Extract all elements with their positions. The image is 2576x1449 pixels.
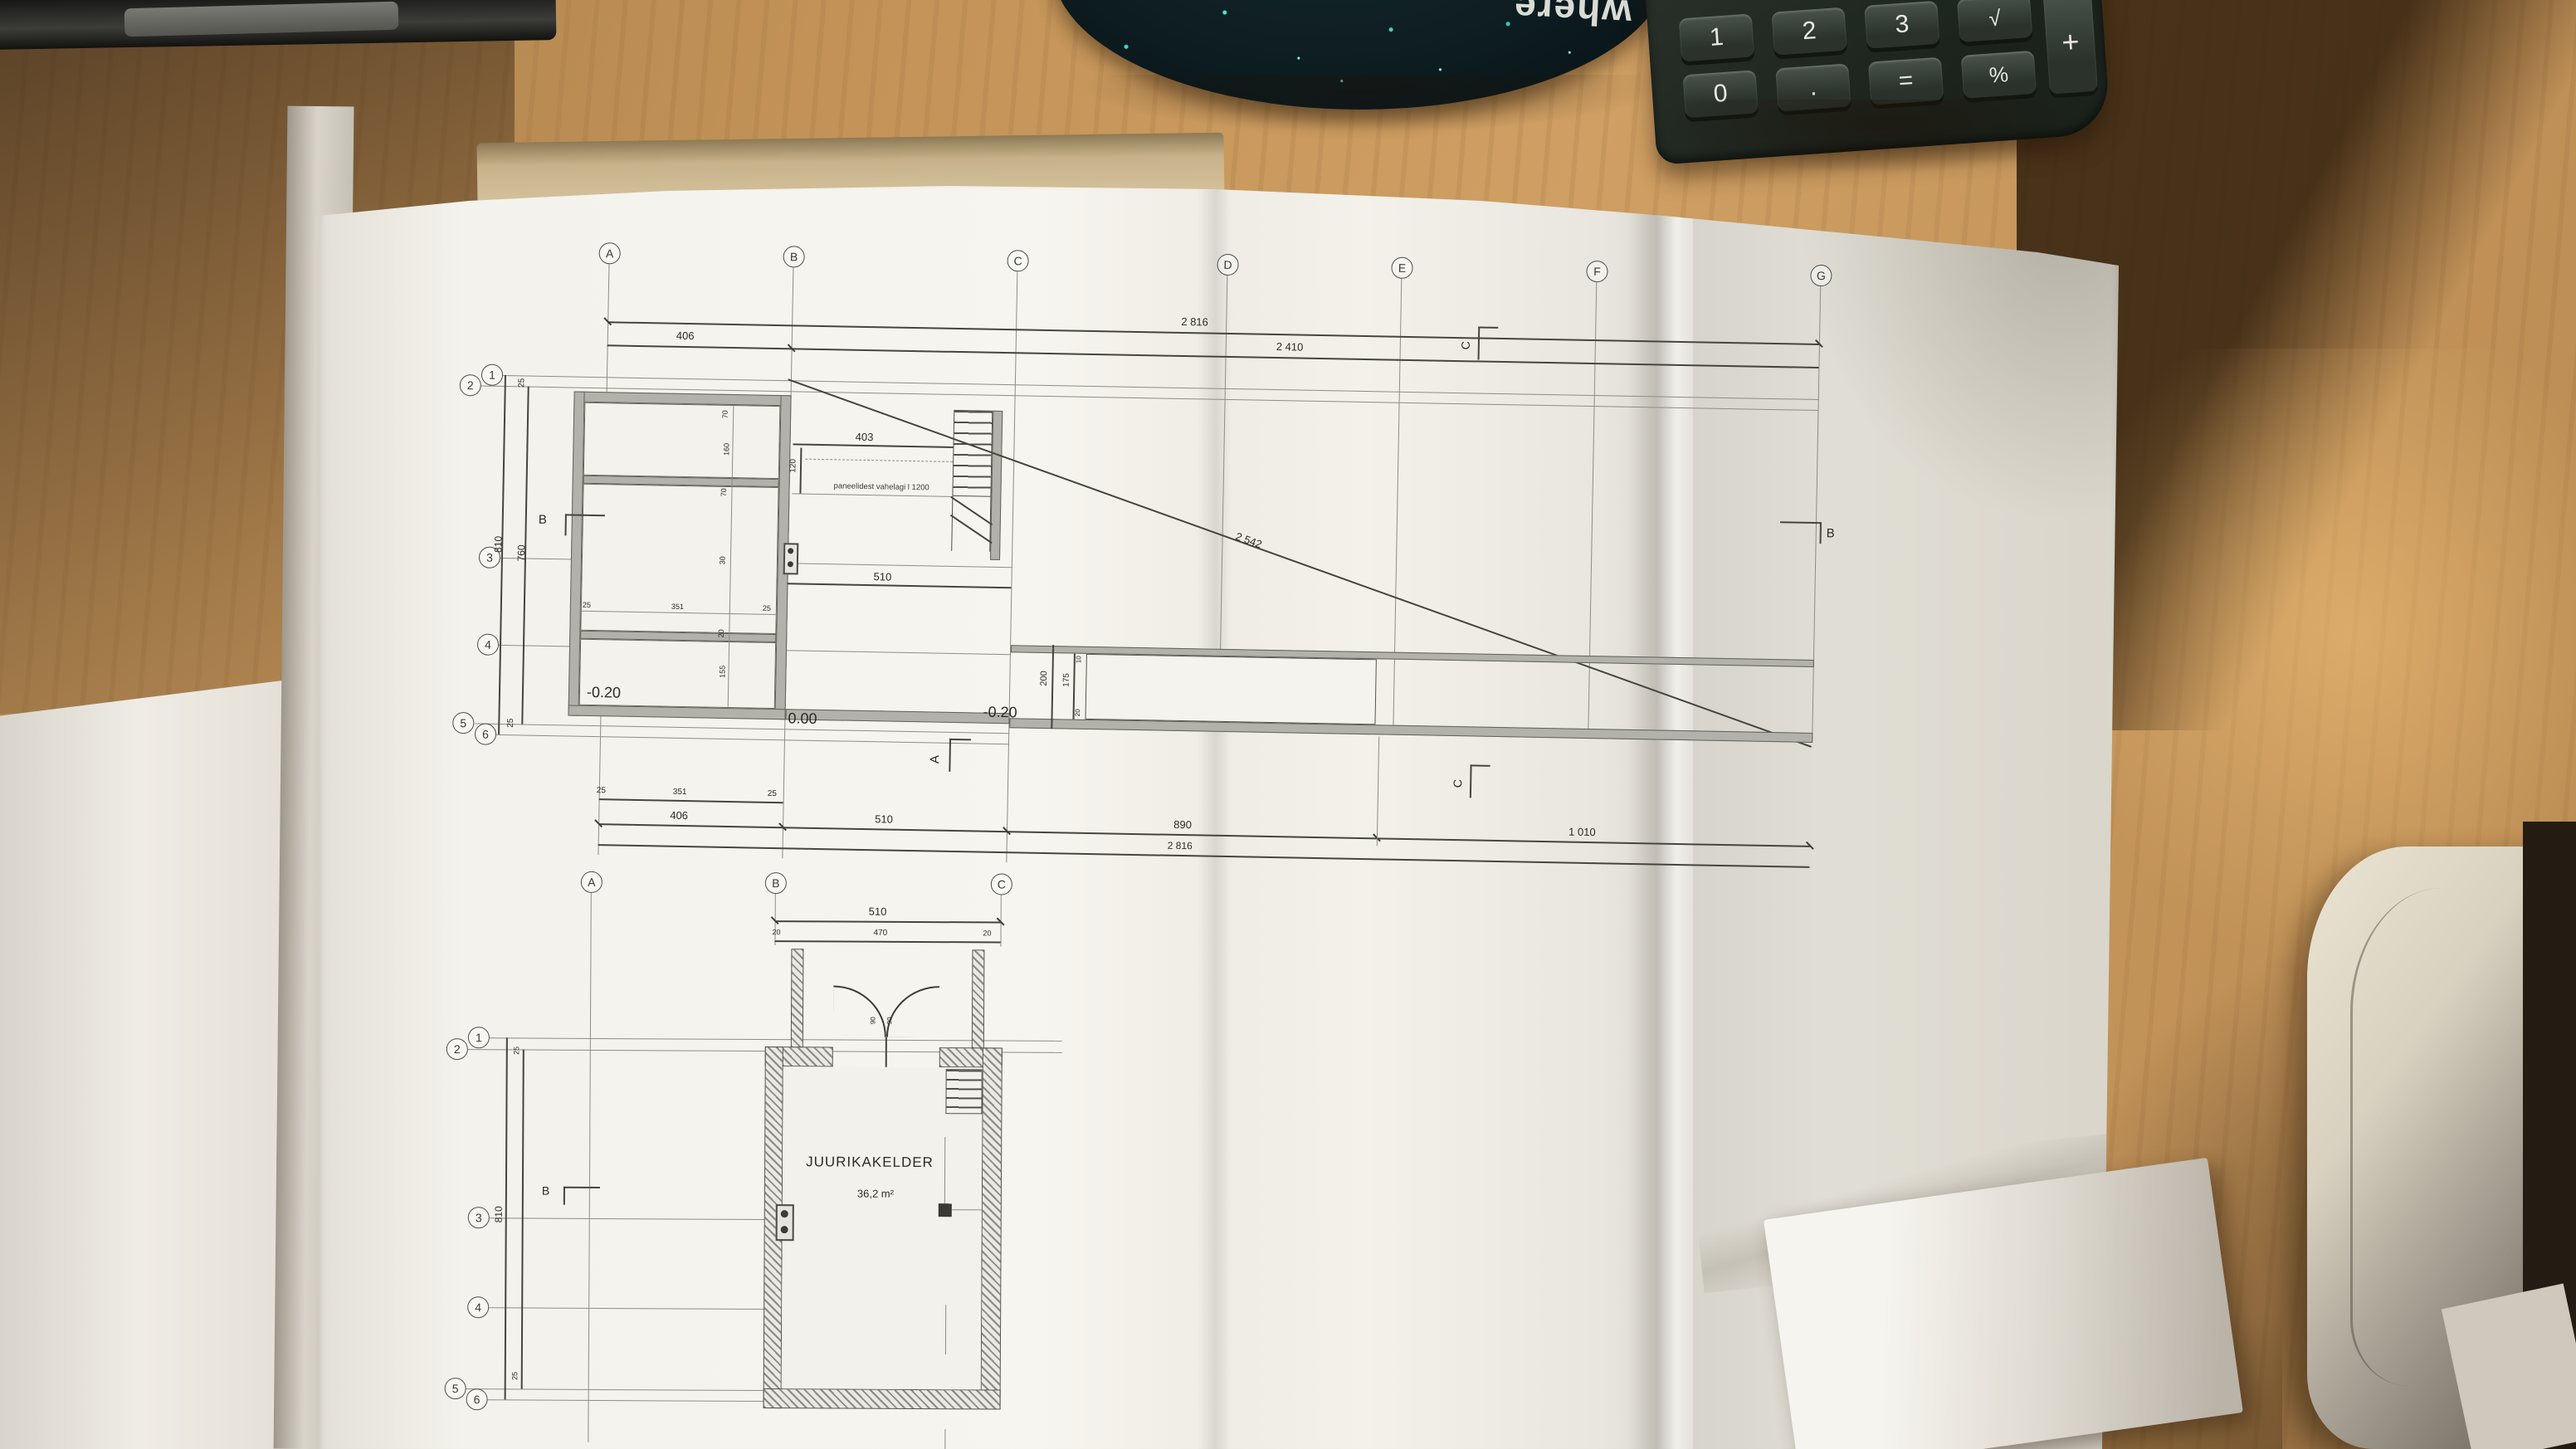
block-dim-70a: 70	[722, 410, 729, 418]
vestibule-wall-left	[791, 949, 804, 1048]
ramp-dim-line-outer	[1051, 645, 1053, 729]
axis-bubble-D: D	[1217, 254, 1238, 276]
dim-line-120	[799, 448, 802, 494]
axis-label-B: B	[790, 250, 798, 263]
section-marker-c-bottom: C	[1451, 779, 1463, 788]
calc-key-3-label: 3	[1894, 10, 1910, 39]
block-dim-30: 30	[719, 556, 726, 564]
dim-line-403	[793, 443, 954, 447]
stairs-upper-wall	[990, 411, 1003, 560]
section-marker-c-top-bracket	[1478, 326, 1498, 328]
left-page	[0, 677, 309, 1449]
axis-label-4: 4	[485, 638, 491, 651]
panel-bottom-line	[792, 493, 952, 497]
axis-label-4: 4	[475, 1300, 481, 1314]
section-marker-b-right-bracket	[1780, 521, 1820, 524]
door-dim-90b: 90	[886, 1017, 893, 1024]
dim-bottom-total: 2 816	[1168, 841, 1193, 851]
axis-label-5: 5	[460, 716, 466, 729]
calc-key-2: 2	[1771, 7, 1847, 56]
calc-key-2-label: 2	[1802, 17, 1817, 46]
block-dim-70b: 70	[720, 488, 728, 496]
ramp-dim-175: 175	[1063, 673, 1071, 687]
dim-bottom-890: 890	[1173, 819, 1192, 830]
dim-top-sub: 2 410	[1276, 341, 1304, 353]
dim-top-total: 2 816	[1181, 316, 1208, 328]
door-symbol-dot	[788, 561, 793, 567]
section-marker-b-left: B	[539, 514, 547, 526]
door-leaf-left-arc	[833, 985, 886, 1037]
axis-bubble-C: C	[1007, 250, 1028, 271]
dim-left-bottom-25: 25	[507, 719, 515, 728]
section-marker-a: A	[929, 755, 941, 764]
dim-ab: 406	[676, 330, 695, 341]
block-dim-155: 155	[719, 666, 726, 678]
calc-key-dot-label: .	[1809, 73, 1818, 101]
section-marker-b: B	[542, 1185, 549, 1197]
cellar-centerline-stub	[944, 1429, 945, 1449]
axis-label-6: 6	[482, 728, 489, 741]
calc-key-percent: %	[1961, 51, 2037, 99]
ramp-interior	[1086, 654, 1377, 724]
calc-key-sqrt: √	[1957, 0, 2032, 42]
dim-bottom-25r: 25	[768, 790, 777, 798]
dim-403: 403	[856, 432, 874, 442]
section-marker-c-bottom-bracket	[1471, 764, 1490, 766]
axis-label-G: G	[1817, 269, 1826, 282]
calc-key-3: 3	[1864, 1, 1939, 49]
cellar-interior	[782, 1066, 983, 1389]
dim-bottom-1010: 1 010	[1569, 827, 1596, 838]
panel-outline	[805, 459, 953, 462]
dim-line-bottom-sub	[599, 798, 783, 803]
gridline-col-g	[1812, 286, 1821, 743]
axis-bubble-4: 4	[477, 633, 499, 655]
section-marker-b-right-bracket	[1820, 522, 1822, 544]
axis-bubble-A: A	[581, 871, 603, 893]
gridline-col-f	[1588, 282, 1597, 739]
calc-key-sqrt-label: √	[1988, 5, 2001, 32]
vent-symbol-dot	[781, 1210, 788, 1217]
dim-bottom-406: 406	[670, 810, 688, 821]
axis-bubble-E: E	[1391, 257, 1412, 279]
block-dim-20: 20	[718, 629, 725, 637]
vent-symbol-dot	[781, 1226, 788, 1233]
dim-bottom-510: 510	[875, 813, 893, 824]
axis-bubble-F: F	[1586, 261, 1608, 282]
ramp-dim-10: 10	[1076, 656, 1082, 663]
section-marker-a-bracket	[949, 739, 951, 772]
level-mid: 0.00	[788, 710, 817, 726]
calc-key-plus-label: +	[2061, 24, 2081, 60]
door-symbol	[783, 543, 799, 574]
ramp-wall-bottom	[1009, 718, 1812, 743]
axis-bubble-6: 6	[475, 723, 496, 744]
section-marker-b-bracket	[563, 1187, 600, 1188]
door-dim-90a: 90	[870, 1017, 876, 1024]
lower-plan: A B C 1 2 3 4 5 6 510 20 470 20 90	[441, 861, 1125, 1449]
gridline-row-6	[496, 734, 1009, 744]
calc-key-percent-label: %	[1988, 61, 2009, 89]
axis-bubble-B: B	[765, 872, 787, 894]
axis-bubble-2: 2	[446, 1038, 468, 1060]
corridor-wall-bottom	[785, 709, 1009, 724]
upper-plan: A B C D E F G 1 2 3 4 5 6 2 816 406 2 41…	[449, 238, 1888, 911]
calc-key-1: 1	[1679, 13, 1754, 61]
gridline-col-a	[588, 893, 591, 1442]
block-subdim-351: 351	[671, 603, 684, 611]
gridline-row-6	[488, 1399, 764, 1402]
block-subdim-25r: 25	[763, 605, 771, 612]
axis-bubble-B: B	[783, 246, 804, 267]
section-marker-c-bottom-bracket	[1470, 764, 1472, 798]
axis-label-2: 2	[454, 1042, 461, 1056]
dim-25t: 25	[513, 1046, 520, 1055]
axis-bubble-3: 3	[468, 1207, 490, 1228]
dim-line-510	[787, 583, 1011, 588]
calc-key-equals-label: =	[1898, 66, 1915, 95]
dim-510: 510	[869, 906, 887, 917]
axis-label-F: F	[1593, 265, 1601, 278]
section-marker-b-bracket	[563, 1187, 565, 1205]
desk-photo: where 1 2 3 √ + 0 . = %	[0, 0, 2576, 1449]
dim-810: 810	[494, 1206, 504, 1222]
axis-bubble-1: 1	[468, 1027, 490, 1048]
dim-120: 120	[789, 459, 798, 473]
gridline-row-5	[466, 1388, 764, 1391]
ramp-dim-200: 200	[1040, 671, 1049, 686]
dim-25b: 25	[511, 1372, 519, 1380]
dim-line-470	[774, 940, 1000, 943]
axis-bubble-C: C	[991, 873, 1012, 895]
axis-label-C: C	[998, 877, 1006, 890]
axis-bubble-5: 5	[445, 1378, 466, 1399]
dim-510: 510	[873, 571, 891, 582]
shadow-under-calculator	[1660, 100, 2091, 174]
block-room-1	[583, 402, 781, 479]
section-marker-a-bracket	[949, 739, 971, 740]
axis-bubble-A: A	[598, 242, 620, 264]
axis-label-5: 5	[452, 1382, 459, 1395]
cellar-line-h	[952, 1209, 982, 1210]
stairs-upper	[952, 410, 993, 497]
room-area: 36,2 m²	[857, 1188, 894, 1199]
dim-boundary-line	[1377, 736, 1379, 846]
level-right: -0.20	[983, 705, 1017, 720]
room-name: JUURIKAKELDER	[806, 1154, 934, 1169]
dim-left-top-25: 25	[518, 378, 526, 388]
shadow-under-mousepad	[1079, 75, 1660, 133]
dim-bottom-351: 351	[673, 788, 687, 797]
stairs-upper-shaft	[951, 496, 991, 552]
gridline-col-e	[1393, 279, 1402, 735]
axis-label-C: C	[1013, 254, 1022, 267]
gridline-row-5	[475, 723, 1009, 734]
cellar-column	[939, 1203, 952, 1217]
dim-line-top-sub	[607, 344, 1819, 368]
axis-label-A: A	[606, 246, 614, 260]
dim-bottom-25l: 25	[597, 787, 606, 795]
section-marker-b-left-bracket	[564, 514, 566, 535]
dim-line-510	[775, 920, 1001, 923]
gridline-row-3	[490, 1217, 764, 1220]
axis-bubble-5: 5	[452, 712, 474, 734]
dim-20r: 20	[983, 929, 992, 937]
level-left: -0.20	[587, 685, 621, 700]
calc-key-1-label: 1	[1709, 23, 1725, 52]
gridline-row-4	[489, 1307, 764, 1310]
block-dim-160: 160	[723, 443, 730, 456]
calc-key-equals: =	[1868, 57, 1944, 105]
axis-bubble-4: 4	[467, 1296, 489, 1318]
axis-label-6: 6	[474, 1393, 481, 1406]
ramp-dim-20: 20	[1075, 709, 1081, 716]
dim-diagonal: 2 542	[1234, 530, 1263, 549]
axis-bubble-6: 6	[466, 1388, 488, 1410]
dim-470: 470	[874, 929, 888, 938]
axis-label-1: 1	[489, 368, 495, 382]
dim-left-outer: 810	[493, 536, 503, 553]
block-subdim-25l: 25	[583, 602, 591, 609]
dim-line-left-inner	[521, 1049, 524, 1388]
mousepad-brand-text: where	[1512, 0, 1633, 37]
axis-bubble-2: 2	[460, 374, 481, 396]
door-symbol-dot	[788, 548, 793, 554]
axis-label-D: D	[1223, 258, 1232, 271]
axis-label-3: 3	[486, 551, 493, 564]
axis-label-2: 2	[467, 378, 474, 392]
axis-label-1: 1	[476, 1031, 482, 1044]
vestibule-wall-right	[972, 949, 985, 1049]
panel-note: paneelidest vahelagi l 1200	[834, 482, 929, 492]
door-leaf-right-arc	[886, 986, 939, 1037]
section-marker-c-top-bracket	[1478, 326, 1481, 359]
section-marker-b-right: B	[1827, 527, 1835, 539]
axis-label-3: 3	[476, 1211, 482, 1224]
dim-left-inner: 760	[516, 544, 526, 561]
vent-symbol	[776, 1204, 794, 1241]
axis-bubble-1: 1	[481, 363, 503, 385]
stairs-lower	[945, 1069, 982, 1114]
cellar-wall-bottom	[764, 1388, 1001, 1409]
axis-label-E: E	[1398, 261, 1407, 275]
cellar-wall-right	[981, 1047, 1003, 1409]
calc-key-plus: +	[2043, 0, 2098, 95]
axis-label-B: B	[772, 876, 779, 890]
dim-line-top-total	[607, 321, 1819, 344]
dim-20l: 20	[773, 929, 781, 936]
dim-line-bottom-main	[598, 823, 1810, 847]
section-marker-c-top: C	[1460, 341, 1471, 349]
axis-label-A: A	[588, 876, 595, 889]
axis-bubble-G: G	[1810, 265, 1832, 286]
printer	[2274, 822, 2576, 1449]
